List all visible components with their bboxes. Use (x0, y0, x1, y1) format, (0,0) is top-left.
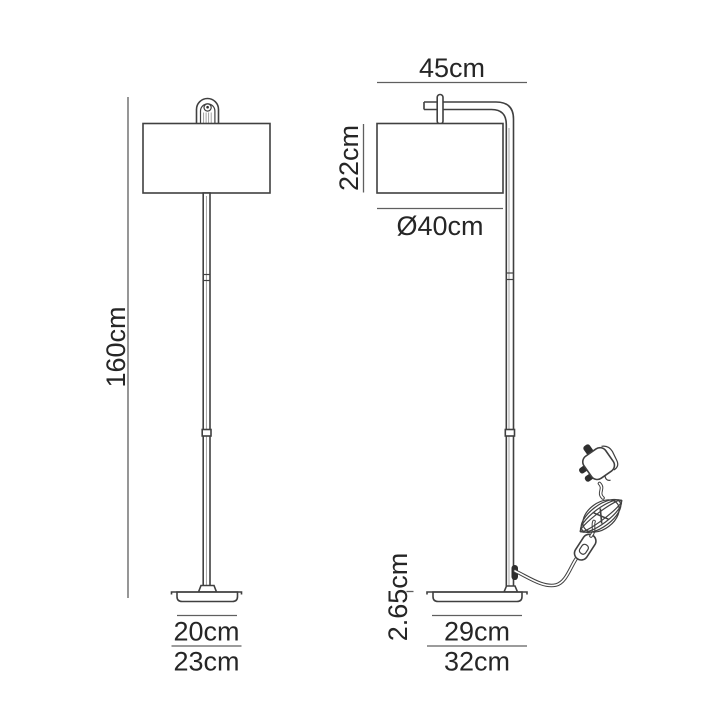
power-cord-assembly (512, 435, 630, 586)
side-shade (377, 124, 503, 194)
side-depth-dimension: 45cm (377, 53, 527, 83)
side-base (427, 586, 527, 602)
side-base-body (433, 592, 522, 602)
base-thickness-dimension: 2.65cm (383, 553, 414, 642)
shade-diameter-dimension: Ø40cm (377, 209, 503, 242)
base-inner-depth-label: 29cm (444, 617, 510, 647)
shade-height-label: 22cm (334, 125, 364, 191)
front-view: 160cm (101, 97, 270, 677)
side-base-collar (504, 586, 518, 592)
uk-plug (569, 435, 625, 492)
front-base-collar (199, 586, 217, 593)
cord-segment (515, 559, 576, 586)
shade-diameter-label: Ø40cm (396, 211, 483, 241)
front-pole-sleeve (202, 430, 211, 437)
side-base-dimensions: 29cm 32cm (427, 616, 527, 677)
floor-lamp-dimension-diagram: 160cm (0, 0, 728, 728)
base-outer-depth-label: 32cm (444, 647, 510, 677)
front-pole (202, 193, 211, 592)
base-outer-width-label: 23cm (173, 647, 239, 677)
base-thickness-label: 2.65cm (383, 553, 413, 642)
front-base (172, 586, 242, 602)
front-arm-loop (197, 99, 219, 124)
side-pole-sleeve (505, 430, 514, 437)
height-dimension-label: 160cm (101, 306, 131, 387)
inline-switch (572, 532, 599, 563)
switch-body (572, 532, 599, 563)
side-view: 45cm 22cm Ø40cm (334, 53, 630, 677)
diagram-canvas: 160cm (0, 0, 728, 728)
lampholder-stub (437, 95, 443, 125)
front-height-dimension: 160cm (101, 97, 131, 598)
base-inner-width-label: 20cm (173, 617, 239, 647)
shade-height-dimension: 22cm (334, 124, 364, 193)
depth-dimension-label: 45cm (419, 53, 485, 83)
front-base-body (177, 592, 238, 602)
front-base-dimensions: 20cm 23cm (172, 616, 242, 677)
loop-finial-dot (206, 106, 209, 109)
front-shade (143, 124, 270, 194)
